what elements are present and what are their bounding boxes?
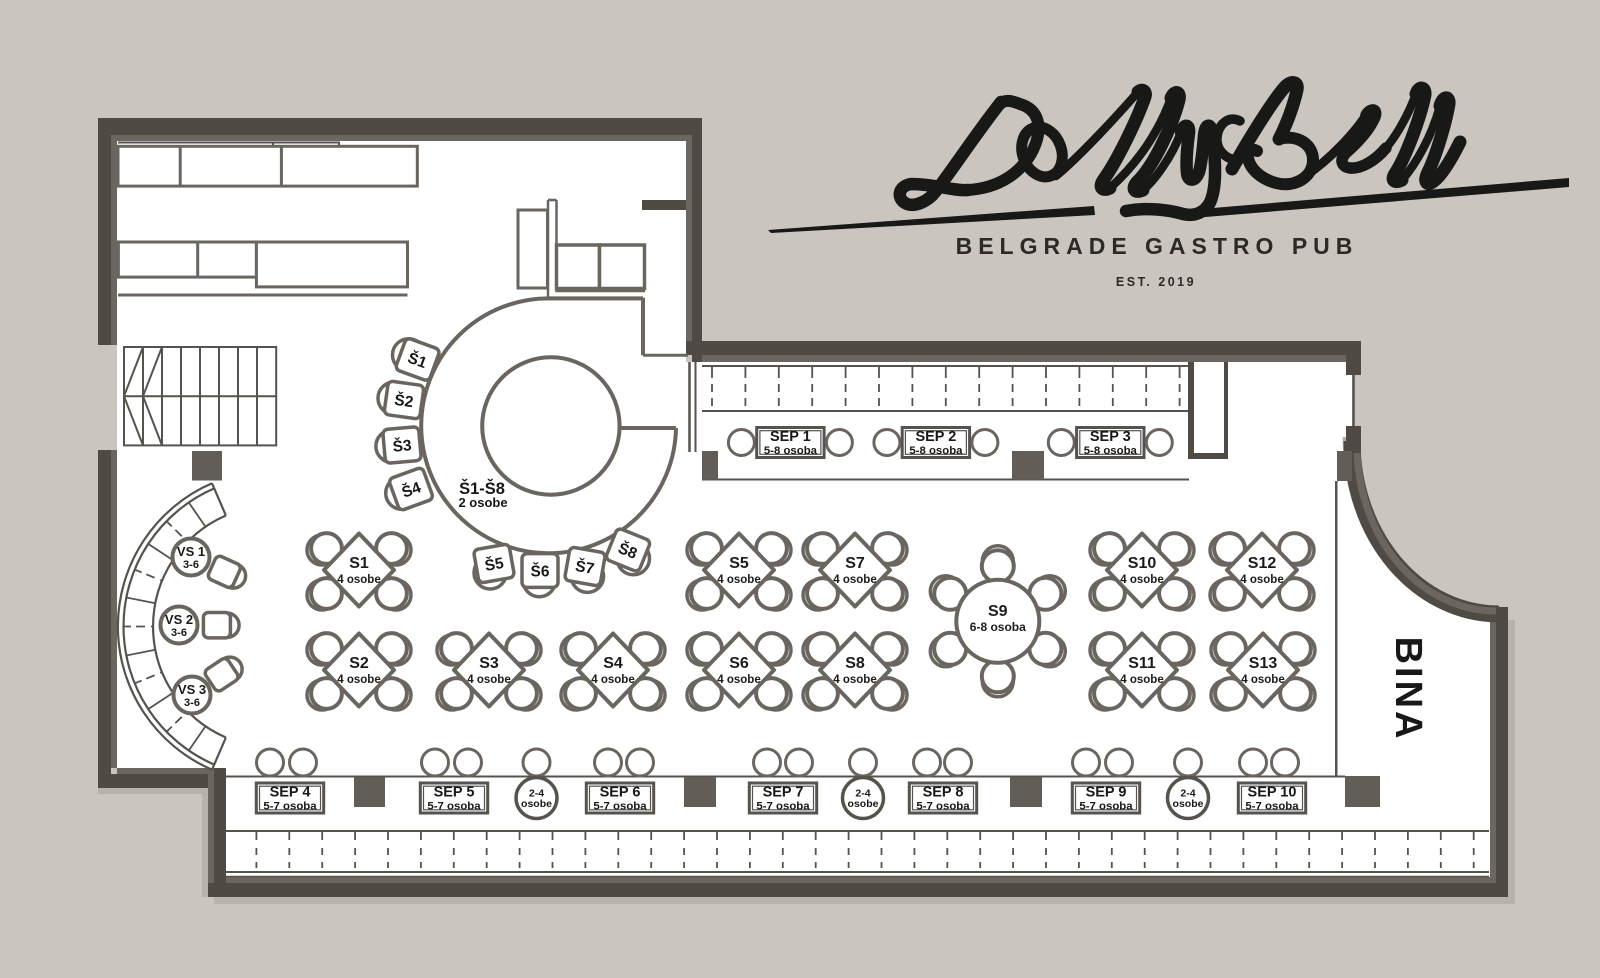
svg-text:Š5: Š5 bbox=[483, 554, 505, 575]
svg-text:S12: S12 bbox=[1248, 555, 1277, 572]
svg-text:4 osobe: 4 osobe bbox=[337, 574, 380, 586]
svg-text:BINA: BINA bbox=[1387, 637, 1429, 742]
svg-text:4 osobe: 4 osobe bbox=[1120, 674, 1163, 686]
svg-text:SEP 7: SEP 7 bbox=[763, 785, 804, 801]
svg-text:S4: S4 bbox=[603, 655, 623, 672]
svg-text:VS 1: VS 1 bbox=[177, 544, 205, 559]
svg-text:Š7: Š7 bbox=[574, 557, 596, 578]
svg-text:S5: S5 bbox=[729, 555, 749, 572]
svg-text:6-8 osoba: 6-8 osoba bbox=[970, 620, 1026, 634]
svg-text:4 osobe: 4 osobe bbox=[337, 674, 380, 686]
svg-text:SEP 4: SEP 4 bbox=[270, 785, 311, 801]
svg-text:4 osobe: 4 osobe bbox=[1241, 674, 1284, 686]
svg-text:5-7 osoba: 5-7 osoba bbox=[916, 801, 970, 813]
svg-text:4 osobe: 4 osobe bbox=[467, 674, 510, 686]
svg-text:S6: S6 bbox=[729, 655, 749, 672]
svg-text:S7: S7 bbox=[845, 555, 865, 572]
svg-text:SEP 8: SEP 8 bbox=[923, 785, 964, 801]
svg-text:S8: S8 bbox=[845, 655, 865, 672]
svg-text:3-6: 3-6 bbox=[184, 697, 200, 709]
svg-text:4 osobe: 4 osobe bbox=[1120, 574, 1163, 586]
svg-text:Š2: Š2 bbox=[393, 391, 414, 411]
svg-text:5-7 osoba: 5-7 osoba bbox=[263, 801, 317, 813]
svg-text:Š6: Š6 bbox=[531, 563, 550, 581]
svg-text:SEP 6: SEP 6 bbox=[600, 785, 641, 801]
svg-text:3-6: 3-6 bbox=[183, 559, 199, 571]
svg-text:EST. 2019: EST. 2019 bbox=[1116, 275, 1196, 289]
svg-text:SEP 10: SEP 10 bbox=[1248, 785, 1297, 801]
svg-text:4 osobe: 4 osobe bbox=[717, 674, 760, 686]
svg-text:osobe: osobe bbox=[848, 798, 879, 810]
svg-text:S3: S3 bbox=[479, 655, 499, 672]
svg-text:4 osobe: 4 osobe bbox=[833, 674, 876, 686]
svg-text:2 osobe: 2 osobe bbox=[458, 495, 507, 510]
svg-text:4 osobe: 4 osobe bbox=[717, 574, 760, 586]
svg-text:osobe: osobe bbox=[1173, 798, 1204, 810]
svg-text:S11: S11 bbox=[1128, 655, 1156, 672]
svg-text:4 osobe: 4 osobe bbox=[591, 674, 634, 686]
svg-text:S9: S9 bbox=[988, 603, 1008, 620]
svg-text:4 osobe: 4 osobe bbox=[833, 574, 876, 586]
svg-text:SEP 1: SEP 1 bbox=[770, 429, 811, 445]
svg-text:5-7 osoba: 5-7 osoba bbox=[756, 801, 810, 813]
svg-text:SEP 5: SEP 5 bbox=[434, 785, 475, 801]
svg-text:5-7 osoba: 5-7 osoba bbox=[427, 801, 481, 813]
svg-text:4 osobe: 4 osobe bbox=[1240, 574, 1283, 586]
svg-text:5-8 osoba: 5-8 osoba bbox=[1084, 445, 1138, 457]
svg-text:5-7 osoba: 5-7 osoba bbox=[1245, 801, 1299, 813]
svg-text:S13: S13 bbox=[1249, 655, 1278, 672]
svg-text:5-7 osoba: 5-7 osoba bbox=[1079, 801, 1133, 813]
svg-text:BELGRADE GASTRO PUB: BELGRADE GASTRO PUB bbox=[956, 233, 1359, 259]
svg-text:5-7 osoba: 5-7 osoba bbox=[593, 801, 647, 813]
svg-text:VS 2: VS 2 bbox=[165, 612, 193, 627]
svg-text:S10: S10 bbox=[1128, 555, 1157, 572]
svg-text:5-8 osoba: 5-8 osoba bbox=[764, 445, 818, 457]
svg-text:SEP 9: SEP 9 bbox=[1086, 785, 1127, 801]
svg-text:SEP 2: SEP 2 bbox=[915, 429, 956, 445]
svg-text:3-6: 3-6 bbox=[171, 627, 187, 639]
svg-text:VS 3: VS 3 bbox=[178, 682, 206, 697]
svg-text:S2: S2 bbox=[349, 655, 369, 672]
svg-text:SEP 3: SEP 3 bbox=[1090, 429, 1131, 445]
svg-text:5-8 osoba: 5-8 osoba bbox=[909, 445, 963, 457]
svg-text:osobe: osobe bbox=[521, 798, 552, 810]
svg-text:Š3: Š3 bbox=[392, 436, 413, 456]
svg-text:S1: S1 bbox=[349, 555, 369, 572]
